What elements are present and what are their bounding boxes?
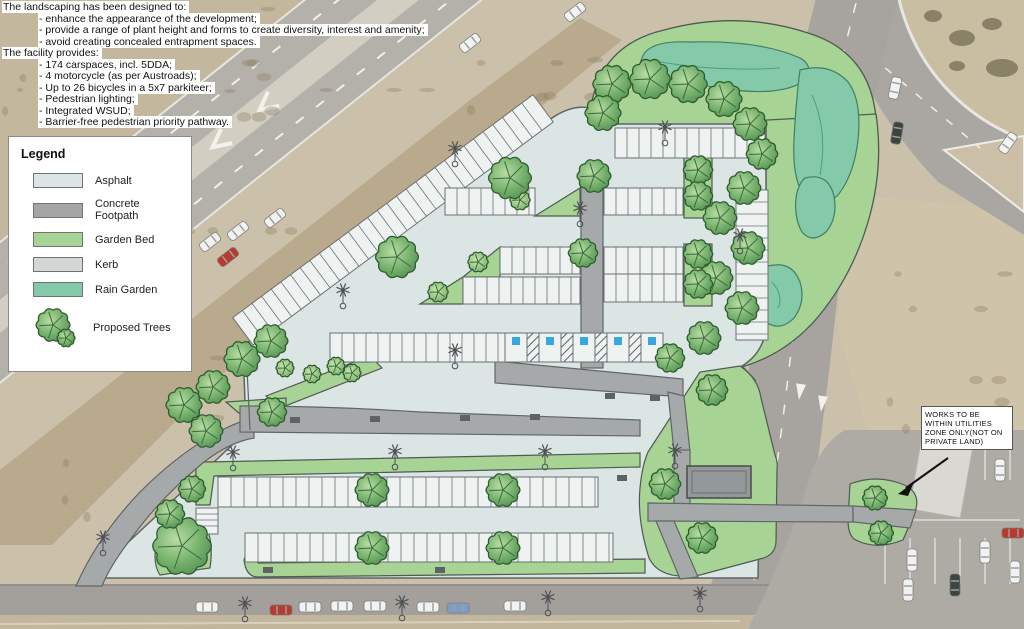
legend-item: Rain Garden [33,282,181,297]
tree-icon [355,532,389,564]
car-body [270,605,292,615]
tree-icon [568,239,597,267]
tree-branch [686,284,698,285]
dda-parking [505,333,663,362]
car-body [1002,528,1024,538]
tree-branch [686,170,698,171]
tree-icon [196,371,230,403]
tree-branch [257,341,271,342]
scrub-speckle [62,495,68,504]
car-icon [950,574,960,596]
parking-row-outline [330,333,505,362]
legend-item: Concrete Footpath [33,198,181,222]
car-icon [1010,561,1020,583]
car-icon [417,602,439,612]
tree-branch [358,490,372,491]
legend-label: Asphalt [95,175,132,187]
legend-item: Kerb [33,257,181,272]
annotation-line: PRIVATE LAND) [925,437,1009,446]
tree-branch [736,124,750,125]
tree-icon [343,364,361,381]
tree-branch [709,99,724,100]
legend-label: Garden Bed [95,234,154,246]
tree-branch [699,390,712,391]
tree-branch [227,359,242,360]
tree-icon [486,474,520,506]
scrub-speckle [894,271,901,276]
car-icon [299,602,321,612]
tree-branch [672,84,688,85]
pole-head [243,601,247,605]
pole-head [453,348,457,352]
legend-swatch [33,257,83,272]
pole-head [393,449,397,453]
tree-icon [303,365,321,382]
car-icon [447,603,469,613]
site-plan-page: KEEP [0,0,1024,629]
kerb-ramp [370,416,380,422]
dda-shared-zone [527,333,539,362]
tree-branch [199,387,213,388]
tree-icon [683,270,712,298]
tree-icon [585,96,621,131]
wheelchair-icon [512,337,520,345]
tree-branch [580,176,594,177]
tree-branch [749,154,762,155]
wheelchair-icon [648,337,656,345]
annotation-line: WITHIN UTILITIES [925,419,1009,428]
scrub-speckle [544,92,557,101]
tree-branch [652,484,665,485]
parking-row [604,247,683,274]
tree-icon [703,202,737,234]
tree-branch [588,113,603,114]
pole-head [341,288,345,292]
note-line: - provide a range of plant height and fo… [2,25,428,37]
car-icon [903,579,913,601]
legend-swatch [33,232,83,247]
parking-row [330,333,505,362]
dda-shared-zone [561,333,573,362]
scrub-speckle [467,105,475,115]
tree-icon [428,282,448,301]
car-body [995,459,1005,481]
tree-icon [166,388,202,423]
pole-head [578,206,582,210]
legend-item: Garden Bed [33,232,181,247]
legend-swatch [33,282,83,297]
note-line: The landscaping has been designed to: [2,2,428,14]
kerb-ramp [435,567,445,573]
kerb-ramp [650,395,660,401]
tree-icon [686,523,718,553]
landscaping-notes: The landscaping has been designed to:- e… [2,2,428,129]
note-line: - 4 motorcycle (as per Austroads); [2,71,428,83]
tree-icon [489,157,532,198]
car-icon [907,549,917,571]
tree-icon [683,182,712,210]
tree-branch [634,79,651,80]
car-icon [270,605,292,615]
tree-branch [489,548,503,549]
tree-icon [257,398,286,426]
scrub-speckle [969,376,982,385]
car-body [364,601,386,611]
parking-row [245,533,613,562]
tree-branch [169,405,184,406]
legend-item: Asphalt [33,173,181,188]
legend-label: Kerb [95,259,118,271]
car-body [299,602,321,612]
legend-item: Proposed Trees [33,307,181,349]
tree-icon [327,357,345,374]
tree-branch [658,358,670,359]
car-body [417,602,439,612]
parkiteer-shelter [687,466,751,498]
legend: Legend AsphaltConcrete FootpathGarden Be… [8,136,192,372]
tree-icon [153,518,212,574]
wheelchair-icon [614,337,622,345]
tree-branch [689,538,702,539]
parking-row-outline [218,477,598,507]
legend-label: Proposed Trees [93,322,171,334]
car-icon [1002,528,1024,538]
scrub-speckle [909,306,918,312]
tree-icon [706,82,742,117]
tree-icon [224,342,260,377]
note-line: - Barrier-free pedestrian priority pathw… [2,117,428,129]
scrub-speckle [587,57,603,63]
car-icon [364,601,386,611]
car-body [903,579,913,601]
tree-branch [358,548,372,549]
scrub-speckle [887,397,894,406]
bottom-street [0,584,780,629]
tree-icon [355,474,389,506]
parking-row [604,274,683,302]
pole-head [663,125,667,129]
tree-branch [260,412,272,413]
tree-branch [686,196,698,197]
parking-row [463,277,580,304]
footpath-exit-crossing [648,503,853,522]
pole-head [453,146,457,150]
tree-icon [649,469,681,499]
pole-head [673,448,677,452]
pole-head [101,535,105,539]
scrub-speckle [477,60,486,66]
pole-head [546,595,550,599]
tree-icon [696,375,728,405]
kerb-ramp [460,415,470,421]
tree-icon [733,108,767,140]
car-body [447,603,469,613]
scrub-speckle [997,271,1013,276]
legend-label: Concrete Footpath [95,198,181,222]
tree-icon [869,521,894,545]
tree-branch [493,178,511,179]
scrub-speckle [974,306,988,312]
tree-icon [33,307,81,349]
tree-icon [486,532,520,564]
scrub-speckle [902,424,910,434]
kerb-ramp [263,567,273,573]
car-icon [331,601,353,611]
tree-branch [690,338,704,339]
legend-label: Rain Garden [95,284,157,296]
tree-icon [276,359,294,376]
pole-head [543,449,547,453]
annotation-line: WORKS TO BE [925,410,1009,419]
tree-icon [655,344,684,372]
kerb-ramp [605,393,615,399]
car-body [950,574,960,596]
tree-branch [571,253,583,254]
tree-icon [155,500,184,528]
parking-row [500,247,580,274]
pole-head [698,591,702,595]
tree-icon [189,415,223,447]
car-body [980,541,990,563]
kerb-ramp [617,475,627,481]
parking-row-outline [463,277,580,304]
dda-shared-zone [629,333,641,362]
annotation-line: ZONE ONLY(NOT ON [925,428,1009,437]
wheelchair-icon [580,337,588,345]
tree-branch [158,514,170,515]
scrub-speckle [991,376,1006,385]
scrub-speckle [550,60,563,66]
tree-branch [489,490,503,491]
parking-row-outline [245,533,613,562]
utilities-annotation: WORKS TO BEWITHIN UTILITIESZONE ONLY(NOT… [921,406,1013,450]
tree-icon [254,325,288,357]
tree-icon [577,160,611,192]
tree-icon [376,236,419,277]
legend-swatch [33,173,83,188]
car-body [504,601,526,611]
tree-branch [706,218,720,219]
car-icon [980,541,990,563]
tree-branch [596,84,612,85]
tree-branch [181,489,192,490]
parking-row [604,188,683,215]
tree-icon [727,172,761,204]
tree-icon [746,139,778,169]
scrub-speckle [210,356,225,361]
tree-branch [686,254,698,255]
car-icon [196,602,218,612]
scrub-speckle [83,512,91,522]
tree-icon [687,322,721,354]
tree-icon [669,66,707,103]
car-icon [995,459,1005,481]
tree-branch [192,431,206,432]
car-body [196,602,218,612]
pole-head [400,600,404,604]
car-icon [504,601,526,611]
tree-icon [179,476,206,502]
pole-head [738,233,742,237]
note-line: The facility provides: [2,48,428,60]
scrub-speckle [265,227,277,235]
wheelchair-icon [546,337,554,345]
tree-icon [468,252,488,271]
tree-icon [683,240,712,268]
car-body [907,549,917,571]
pole-head [231,450,235,454]
tree-branch [380,257,398,258]
tree-branch [728,308,742,309]
tree-branch [730,188,744,189]
car-body [1010,561,1020,583]
parking-row [218,477,598,507]
note-line: - Pedestrian lighting; [2,94,428,106]
legend-title: Legend [21,147,181,161]
legend-swatch [33,203,83,218]
tree-icon [725,292,759,324]
tree-icon [863,486,888,510]
kerb-ramp [290,417,300,423]
scrub-speckle [63,459,69,467]
scrub-speckle [285,227,298,235]
tree-icon [683,156,712,184]
kerb-ramp [530,414,540,420]
dda-shared-zone [595,333,607,362]
car-body [331,601,353,611]
tree-icon [630,59,671,98]
